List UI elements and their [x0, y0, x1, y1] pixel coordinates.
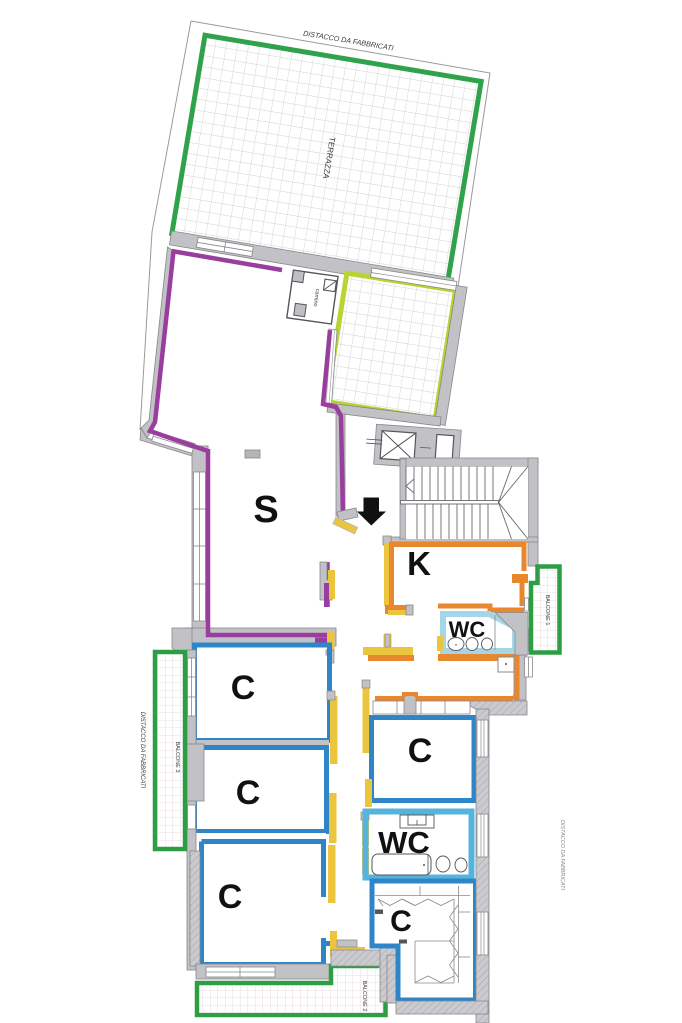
- svg-text:C: C: [390, 905, 412, 938]
- svg-text:BALCONE 2: BALCONE 2: [361, 981, 367, 1012]
- svg-text:S: S: [253, 489, 278, 531]
- svg-text:DISTACCO DA FABBRICATI: DISTACCO DA FABBRICATI: [139, 712, 145, 789]
- svg-text:BALCONE 1: BALCONE 1: [544, 595, 550, 626]
- svg-text:C: C: [231, 669, 256, 707]
- svg-text:C: C: [236, 774, 261, 812]
- svg-text:DISTACCO DA FABBRICATI: DISTACCO DA FABBRICATI: [559, 820, 565, 891]
- svg-text:K: K: [407, 545, 431, 582]
- svg-text:DISTACCO DA FABBRICATI: DISTACCO DA FABBRICATI: [303, 29, 395, 53]
- svg-text:BALCONE 3: BALCONE 3: [174, 742, 180, 773]
- svg-text:C: C: [218, 878, 243, 916]
- svg-text:C: C: [408, 732, 433, 770]
- svg-text:WC: WC: [449, 617, 486, 642]
